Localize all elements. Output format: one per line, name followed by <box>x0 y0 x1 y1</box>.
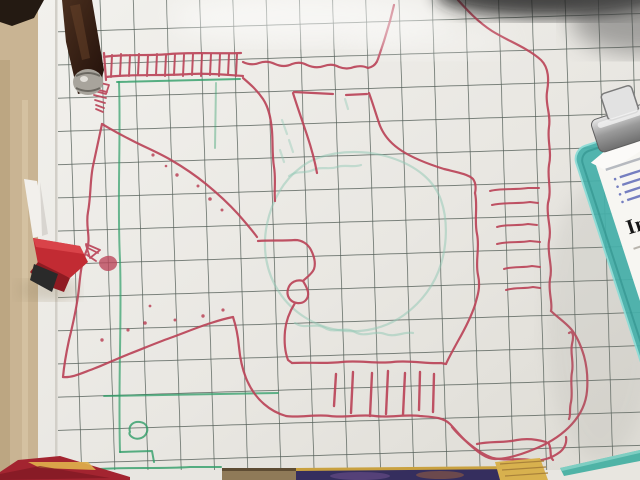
whiteboard-photo: Introd <box>0 0 640 480</box>
board-left-crease <box>55 0 58 474</box>
grid-lines <box>58 0 640 474</box>
scene-canvas: Introd <box>0 0 640 480</box>
